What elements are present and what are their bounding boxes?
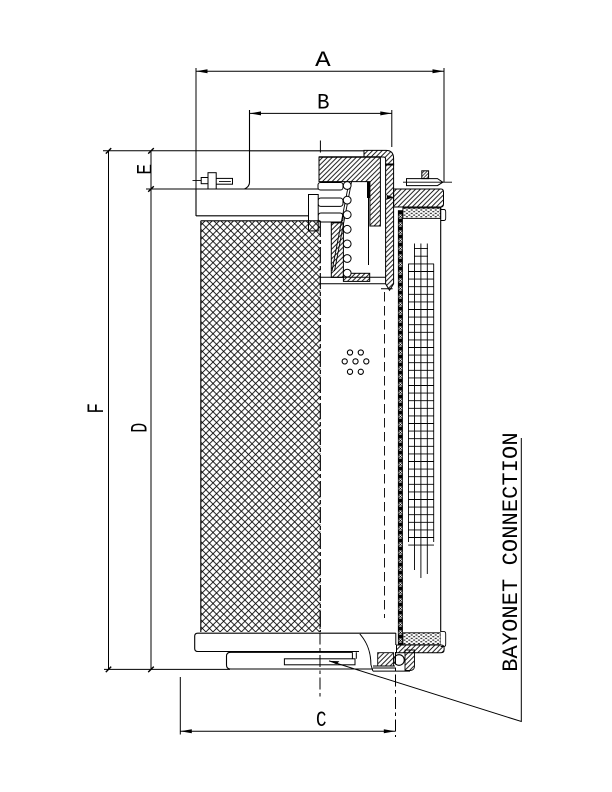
svg-text:E: E	[133, 164, 158, 175]
svg-text:F: F	[84, 403, 110, 414]
svg-text:B: B	[317, 90, 330, 115]
svg-text:BAYONET CONNECTION: BAYONET CONNECTION	[499, 432, 524, 671]
svg-text:A: A	[315, 48, 331, 73]
svg-text:D: D	[128, 423, 154, 433]
svg-text:C: C	[316, 708, 327, 733]
